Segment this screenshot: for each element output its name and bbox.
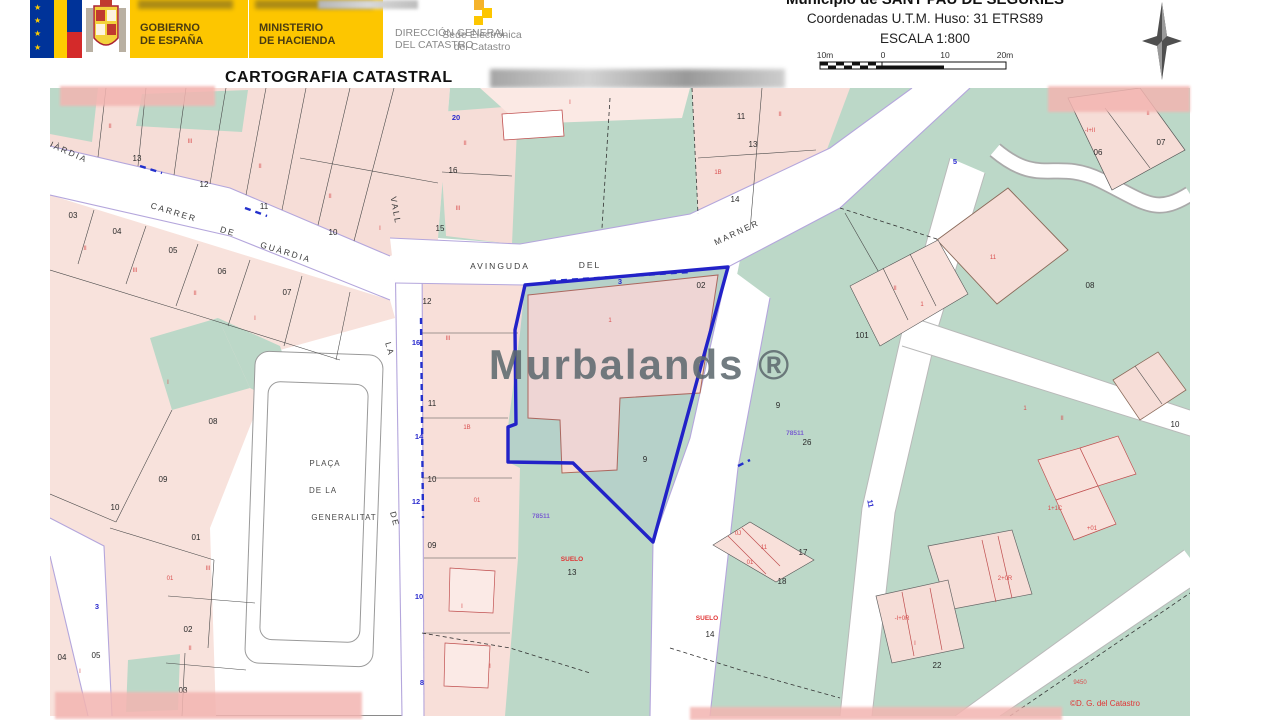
map-label: II bbox=[193, 291, 197, 297]
map-label: 10 bbox=[428, 475, 437, 484]
map-label: III bbox=[187, 139, 192, 145]
watermark: Murbalands ® bbox=[489, 341, 791, 389]
map-label: 11 bbox=[260, 202, 269, 211]
map-label: SUELO bbox=[561, 556, 583, 563]
gobierno-line2: DE ESPAÑA bbox=[140, 35, 203, 47]
redacted-map-label bbox=[690, 707, 1062, 720]
scale-bar-graphic bbox=[820, 62, 1006, 69]
map-label: 02 bbox=[697, 281, 706, 290]
sede-label: Sede Electrónica del Catastro bbox=[437, 29, 527, 53]
map-label: 5 bbox=[953, 157, 957, 166]
building-outline[interactable] bbox=[444, 643, 490, 688]
map-label: 0J bbox=[735, 531, 741, 537]
map-label: 18 bbox=[778, 577, 787, 586]
redacted-map-label bbox=[1048, 86, 1190, 112]
map-label: 14 bbox=[415, 432, 424, 441]
cadastral-map[interactable]: CARRERDEGUÀRDIAUÀRDIAAVINGUDADELMARNERVA… bbox=[50, 88, 1190, 716]
map-label: 10 bbox=[329, 228, 338, 237]
scale-tick: 0 bbox=[881, 50, 886, 60]
map-label: 14 bbox=[706, 630, 715, 639]
map-label: II bbox=[108, 124, 112, 130]
map-label: 06 bbox=[218, 267, 227, 276]
map-label: 1+1C bbox=[1048, 506, 1063, 512]
map-label: 10 bbox=[415, 592, 423, 601]
map-label: 20 bbox=[452, 113, 460, 122]
map-label: 78511 bbox=[532, 513, 550, 520]
map-label: 11 bbox=[865, 499, 875, 508]
map-label: 10 bbox=[1171, 420, 1180, 429]
map-label: 11 bbox=[990, 255, 997, 261]
map-label: III bbox=[445, 336, 450, 342]
eu-flag-logo: ★ ★ ★ ★ bbox=[30, 0, 82, 58]
map-label: 11 bbox=[428, 399, 437, 408]
map-label: 12 bbox=[412, 497, 420, 506]
map-label: 13 bbox=[749, 140, 758, 149]
map-label: 01 bbox=[167, 576, 174, 582]
redacted-map-label bbox=[55, 692, 362, 719]
gobierno-box: GOBIERNO DE ESPAÑA bbox=[130, 0, 248, 58]
header: ★ ★ ★ ★ GOBIERNO DE ESPAÑA MINISTERIO DE… bbox=[0, 0, 1280, 88]
building-outline[interactable] bbox=[449, 568, 495, 613]
scale-tick: 20m bbox=[997, 50, 1014, 60]
cadastral-print-page: { "header": { "gobierno_1": "GOBIERNO", … bbox=[0, 0, 1280, 720]
map-label: 09 bbox=[159, 475, 168, 484]
map-label: II bbox=[463, 141, 467, 147]
coordinates-label: Coordenadas U.T.M. Huso: 31 ETRS89 bbox=[745, 11, 1105, 26]
map-label: 1B bbox=[463, 425, 470, 431]
map-label: 16 bbox=[412, 338, 420, 347]
map-label: II bbox=[893, 286, 897, 292]
municipio-title: Municipio de SANT PAU DE SEGURIES bbox=[745, 0, 1105, 11]
map-label: 2+0R bbox=[998, 576, 1013, 582]
scale-tick: 10 bbox=[940, 50, 950, 60]
scale-bar: 10m 0 10 20m bbox=[815, 50, 1020, 74]
redacted-reference bbox=[490, 69, 785, 88]
map-label: 05 bbox=[169, 246, 178, 255]
map-label: 01 bbox=[474, 498, 481, 504]
map-label: 1B bbox=[714, 170, 721, 176]
map-label: 07 bbox=[283, 288, 292, 297]
map-label: 14 bbox=[731, 195, 740, 204]
page-title: CARTOGRAFIA CATASTRAL bbox=[225, 69, 453, 87]
map-label: AVINGUDA bbox=[470, 261, 530, 271]
spain-coat-of-arms bbox=[84, 0, 128, 58]
map-label: 15 bbox=[436, 224, 445, 233]
map-label: II bbox=[188, 646, 192, 652]
map-label: -I+0R bbox=[895, 616, 911, 622]
map-label: 11 bbox=[761, 545, 768, 551]
ministerio-line2: DE HACIENDA bbox=[259, 35, 335, 47]
map-label: +01 bbox=[1087, 526, 1098, 532]
map-label: 13 bbox=[133, 154, 142, 163]
map-label: 10 bbox=[111, 503, 120, 512]
map-label: 9 bbox=[776, 401, 781, 410]
map-label: 08 bbox=[1086, 281, 1095, 290]
map-label: GENERALITAT bbox=[311, 513, 376, 522]
map-label: 78511 bbox=[786, 430, 804, 437]
redacted-header-bar bbox=[318, 0, 418, 9]
map-label: II bbox=[328, 194, 332, 200]
map-label: III bbox=[455, 206, 460, 212]
map-label: 09 bbox=[428, 541, 437, 550]
map-label: II bbox=[83, 246, 87, 252]
map-label: 03 bbox=[69, 211, 78, 220]
sede-electronica-icon bbox=[462, 0, 496, 26]
scale-tick: 10m bbox=[817, 50, 834, 60]
map-label: DEL bbox=[579, 260, 602, 270]
redacted-map-label bbox=[60, 86, 215, 106]
map-label: 01 bbox=[192, 533, 201, 542]
map-label: II bbox=[1060, 416, 1064, 422]
map-label: 08 bbox=[209, 417, 218, 426]
map-label: 8 bbox=[420, 678, 424, 687]
building-outline[interactable] bbox=[502, 110, 564, 140]
map-label: 9450 bbox=[1073, 680, 1087, 686]
map-label: SUELO bbox=[696, 615, 718, 622]
map-label: II bbox=[258, 164, 262, 170]
map-label: 04 bbox=[113, 227, 122, 236]
map-label: 3 bbox=[618, 277, 622, 286]
map-label: 11 bbox=[737, 112, 746, 121]
map-label: III bbox=[132, 268, 137, 274]
ministerio-line1: MINISTERIO bbox=[259, 22, 323, 34]
map-label: 06 bbox=[1094, 148, 1103, 157]
map-label: 26 bbox=[803, 438, 812, 447]
gobierno-line1: GOBIERNO bbox=[140, 22, 200, 34]
map-label: 13 bbox=[568, 568, 577, 577]
map-label: 04 bbox=[58, 653, 67, 662]
map-label: DE LA bbox=[309, 486, 337, 495]
map-label: II bbox=[778, 112, 782, 118]
map-label: III bbox=[205, 566, 210, 572]
map-label: 3 bbox=[95, 602, 99, 611]
map-label: 01 bbox=[747, 560, 754, 566]
map-label: 12 bbox=[200, 180, 209, 189]
map-label: 17 bbox=[799, 548, 808, 557]
plaza-generalitat bbox=[245, 351, 384, 667]
map-label: 02 bbox=[184, 625, 193, 634]
map-label: 9 bbox=[643, 455, 648, 464]
map-label: PLAÇA bbox=[309, 459, 340, 468]
map-label: 101 bbox=[855, 331, 869, 340]
map-label: 12 bbox=[423, 297, 432, 306]
map-label: -I+II bbox=[1085, 128, 1096, 134]
map-label: 07 bbox=[1157, 138, 1166, 147]
map-label: ©D. G. del Catastro bbox=[1070, 699, 1140, 708]
scale-label: ESCALA 1:800 bbox=[745, 31, 1105, 46]
map-label: 22 bbox=[933, 661, 942, 670]
compass-rose-icon bbox=[1140, 0, 1184, 82]
map-label: 16 bbox=[449, 166, 458, 175]
map-label: 05 bbox=[92, 651, 101, 660]
